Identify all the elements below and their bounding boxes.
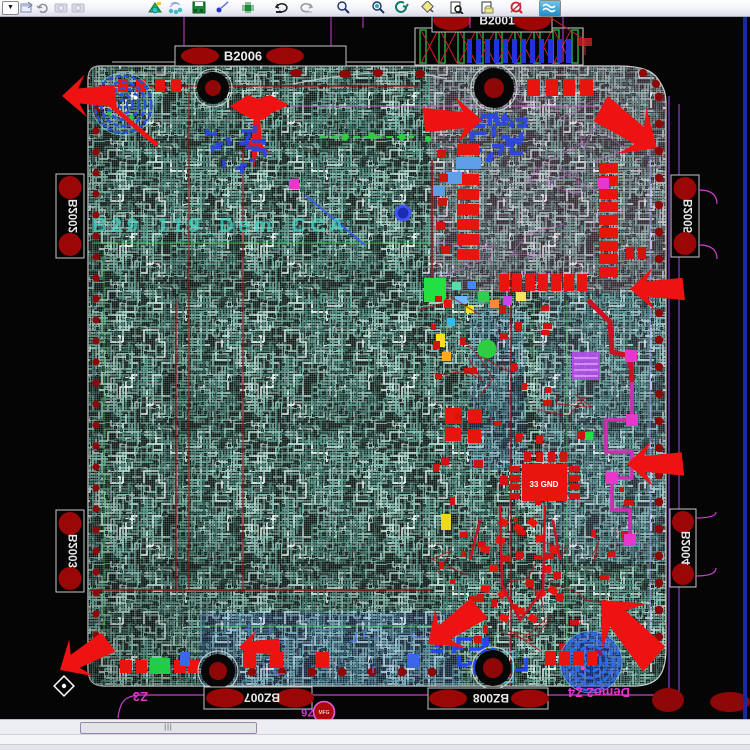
- svg-text:BZ008: BZ008: [473, 691, 509, 705]
- svg-text:MFG: MFG: [318, 710, 329, 716]
- svg-text:Z3: Z3: [133, 689, 148, 704]
- svg-text:B29_119_Dem_CCA: B29_119_Dem_CCA: [92, 215, 349, 237]
- svg-text:B2006: B2006: [224, 49, 262, 64]
- svg-text:Demo2 Z4: Demo2 Z4: [567, 685, 630, 700]
- svg-text:B2002: B2002: [68, 199, 80, 233]
- svg-text:B2005: B2005: [683, 199, 695, 233]
- svg-text:Z6: Z6: [301, 706, 314, 718]
- svg-text:B2004: B2004: [681, 531, 693, 565]
- svg-text:B2003: B2003: [68, 534, 80, 568]
- svg-text:33 GND: 33 GND: [530, 480, 559, 489]
- svg-text:BZ007: BZ007: [244, 691, 280, 705]
